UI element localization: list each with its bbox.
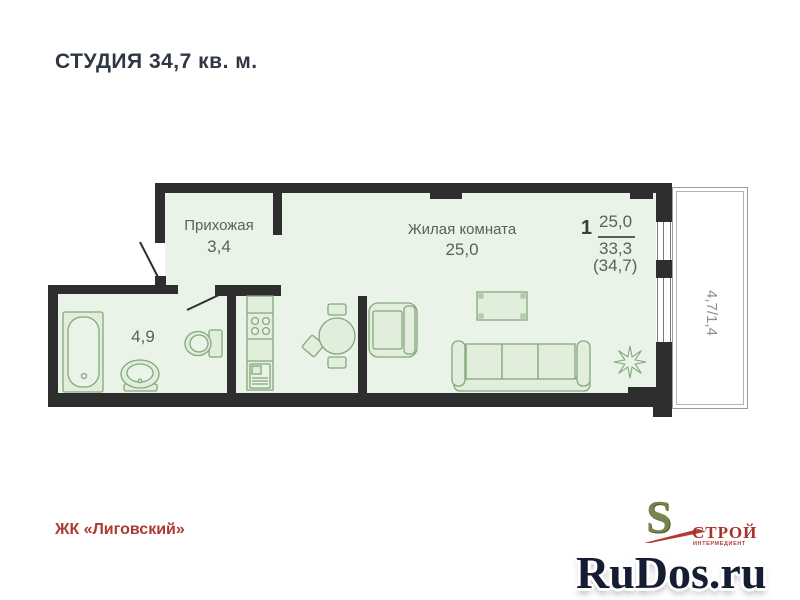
dining-table-icon: [302, 304, 355, 368]
watermark: RuDos.ru: [576, 546, 766, 599]
rooms-count: 1: [560, 217, 592, 240]
bathtub-icon: [63, 312, 103, 392]
floorplan-page: СТУДИЯ 34,7 кв. м. 4,7/1,4: [0, 0, 800, 600]
summary-living-area: 25,0: [599, 212, 643, 232]
toilet-icon: [185, 330, 222, 357]
living-room-area: 25,0: [402, 240, 522, 260]
bathroom-door-leaf: [187, 294, 221, 310]
complex-name: ЖК «Лиговский»: [55, 521, 185, 539]
summary-total-area: (34,7): [593, 256, 645, 276]
hallway-area: 3,4: [169, 237, 269, 257]
sofa-icon: [452, 341, 590, 391]
bath-sink-icon: [121, 360, 159, 391]
living-room-label: Жилая комната: [402, 221, 522, 238]
furniture-layer: [0, 0, 800, 600]
summary-fraction-line: [598, 236, 635, 238]
entry-door-leaf: [140, 242, 160, 281]
kitchen-counter-icon: [247, 296, 273, 390]
logo-letter: S: [646, 494, 672, 540]
compass-star-icon: [614, 346, 646, 378]
armchair-icon: [369, 303, 417, 357]
coffee-table-icon: [477, 292, 527, 320]
logo-name: СТРОЙ: [692, 523, 757, 543]
bathroom-area: 4,9: [113, 327, 173, 347]
hallway-label: Прихожая: [169, 217, 269, 234]
